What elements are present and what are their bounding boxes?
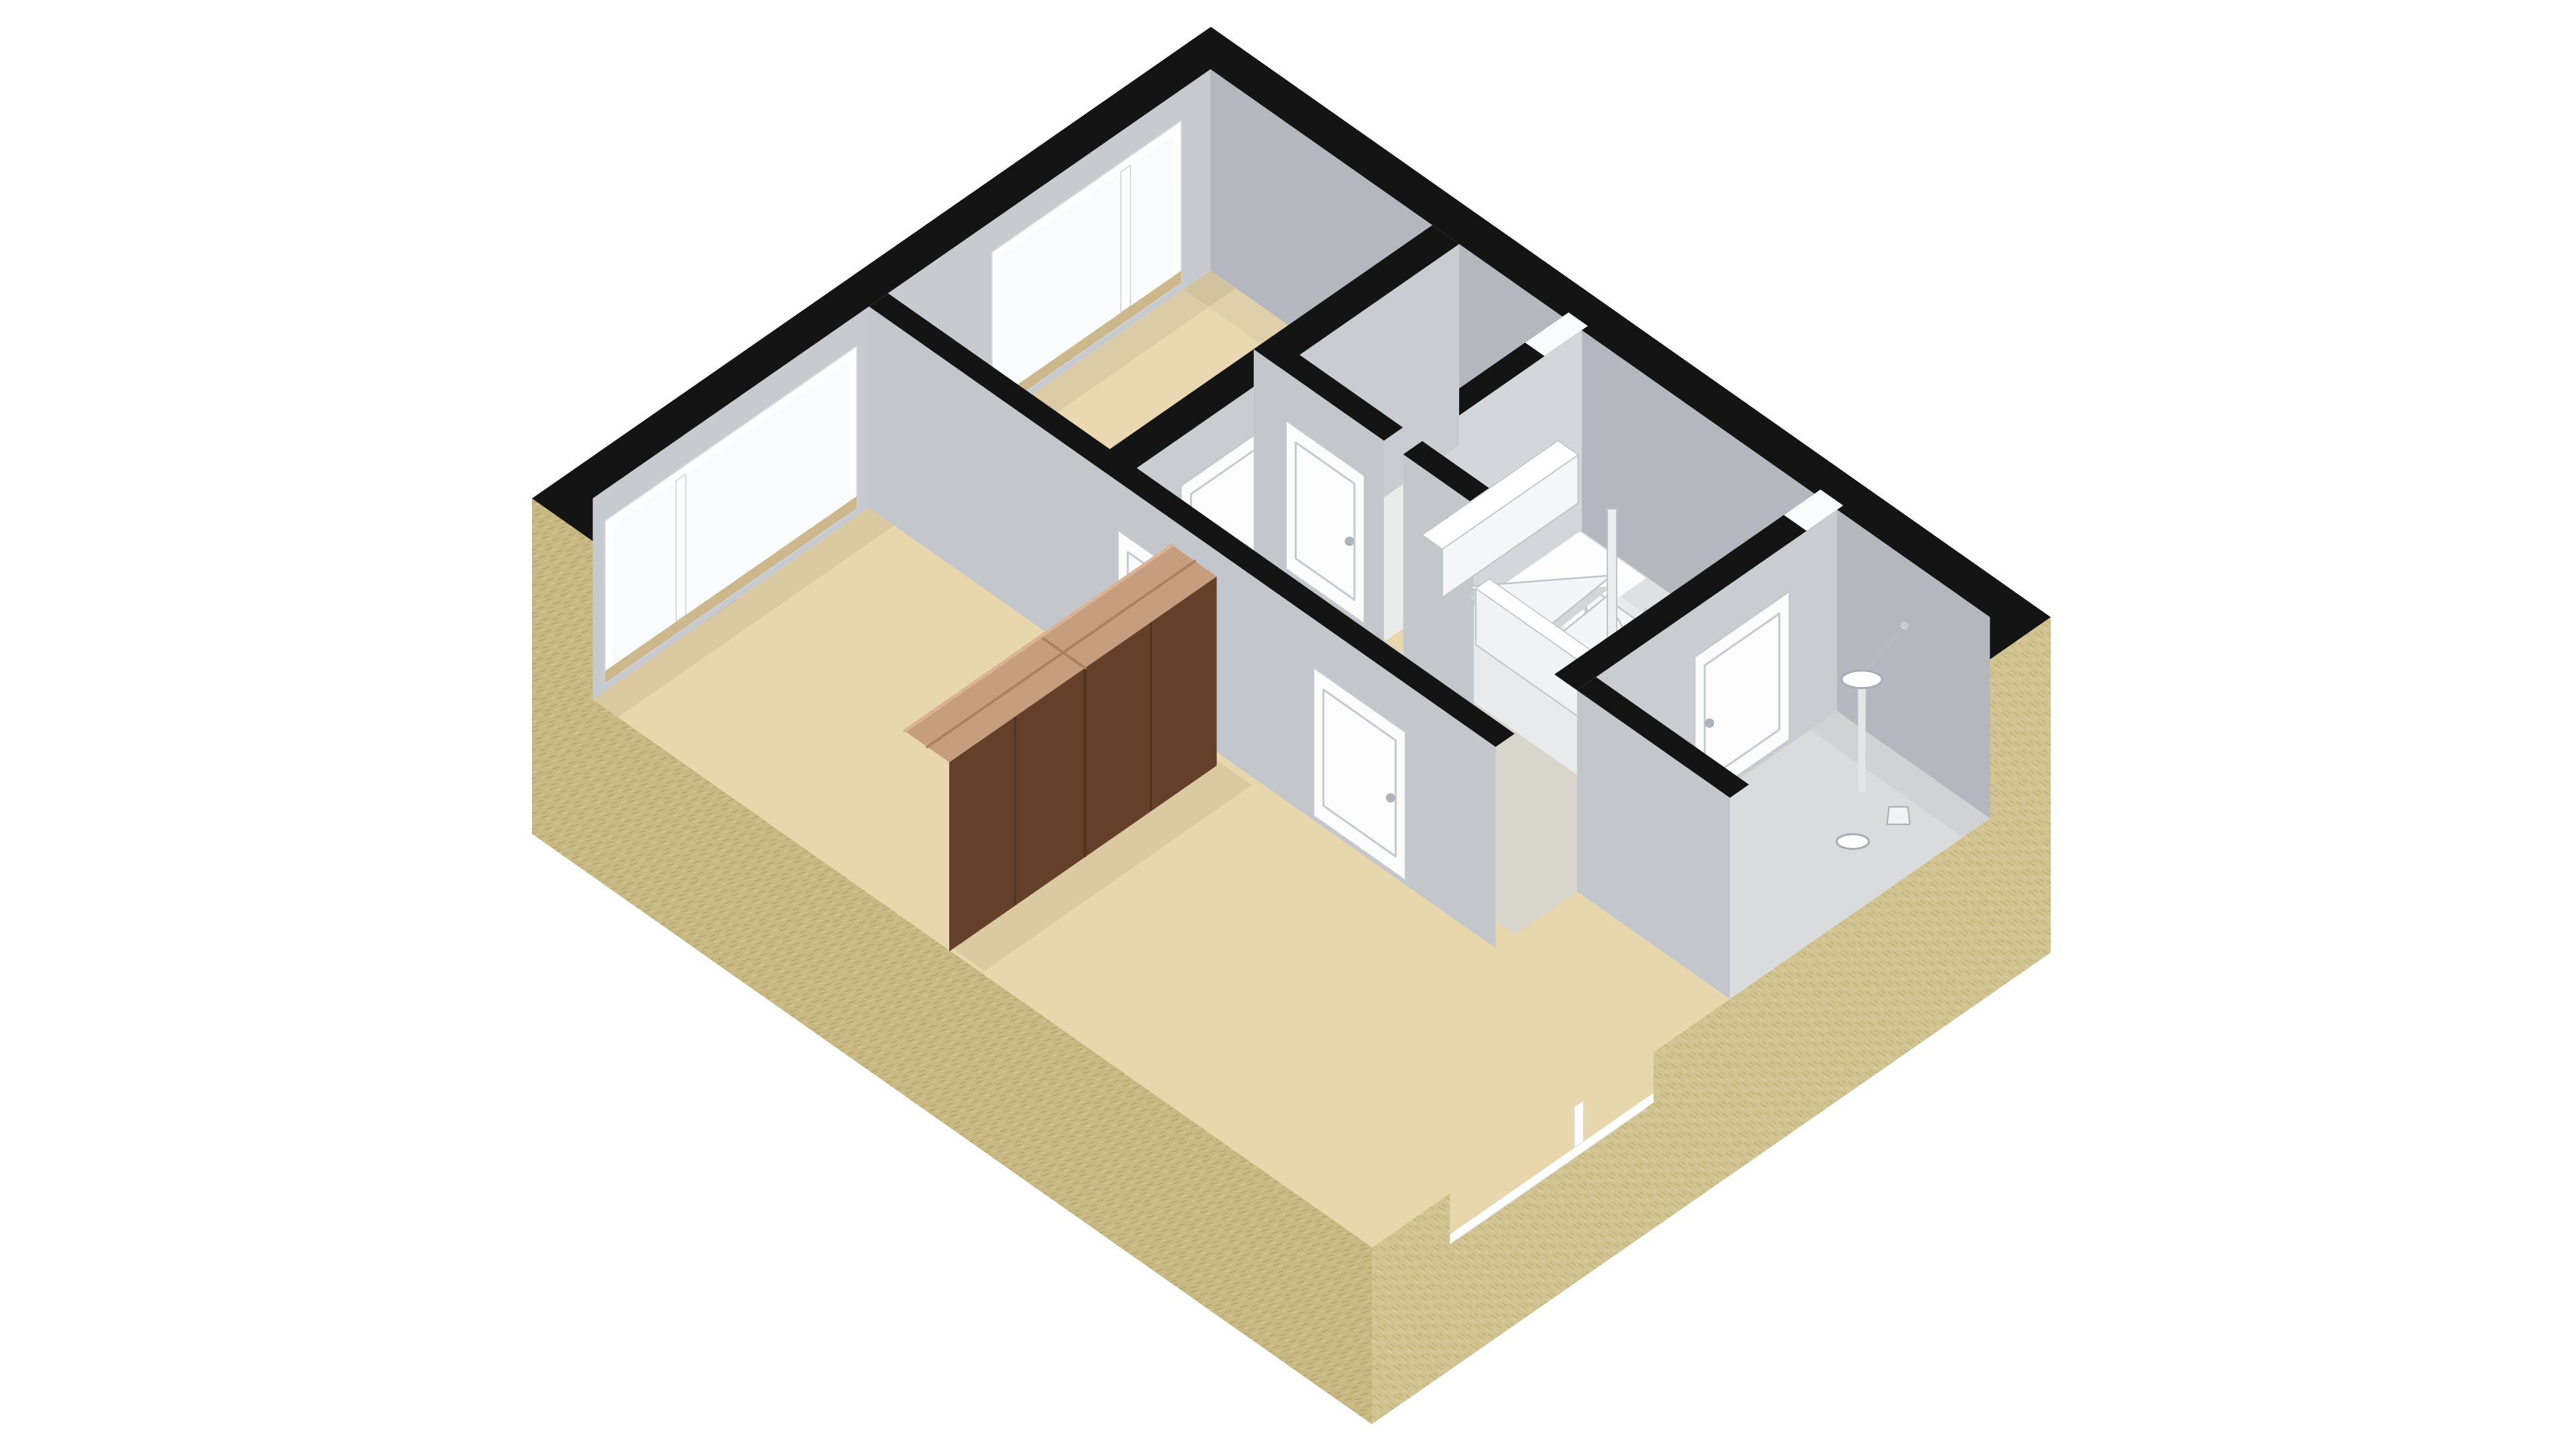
door-handle	[1345, 537, 1354, 546]
sink-pedestal	[1858, 680, 1866, 792]
sink-tap-base	[1900, 621, 1909, 629]
bathroom-toilet	[1837, 835, 1869, 849]
floorplan-stage	[0, 0, 2576, 1449]
bathroom-sink	[1841, 671, 1882, 688]
window-mullion	[1121, 165, 1130, 313]
door-handle	[1705, 718, 1714, 728]
window-mullion	[676, 474, 686, 622]
floorplan-canvas	[0, 0, 2576, 1449]
door-handle	[1386, 793, 1395, 802]
toilet-tank	[1887, 807, 1910, 824]
